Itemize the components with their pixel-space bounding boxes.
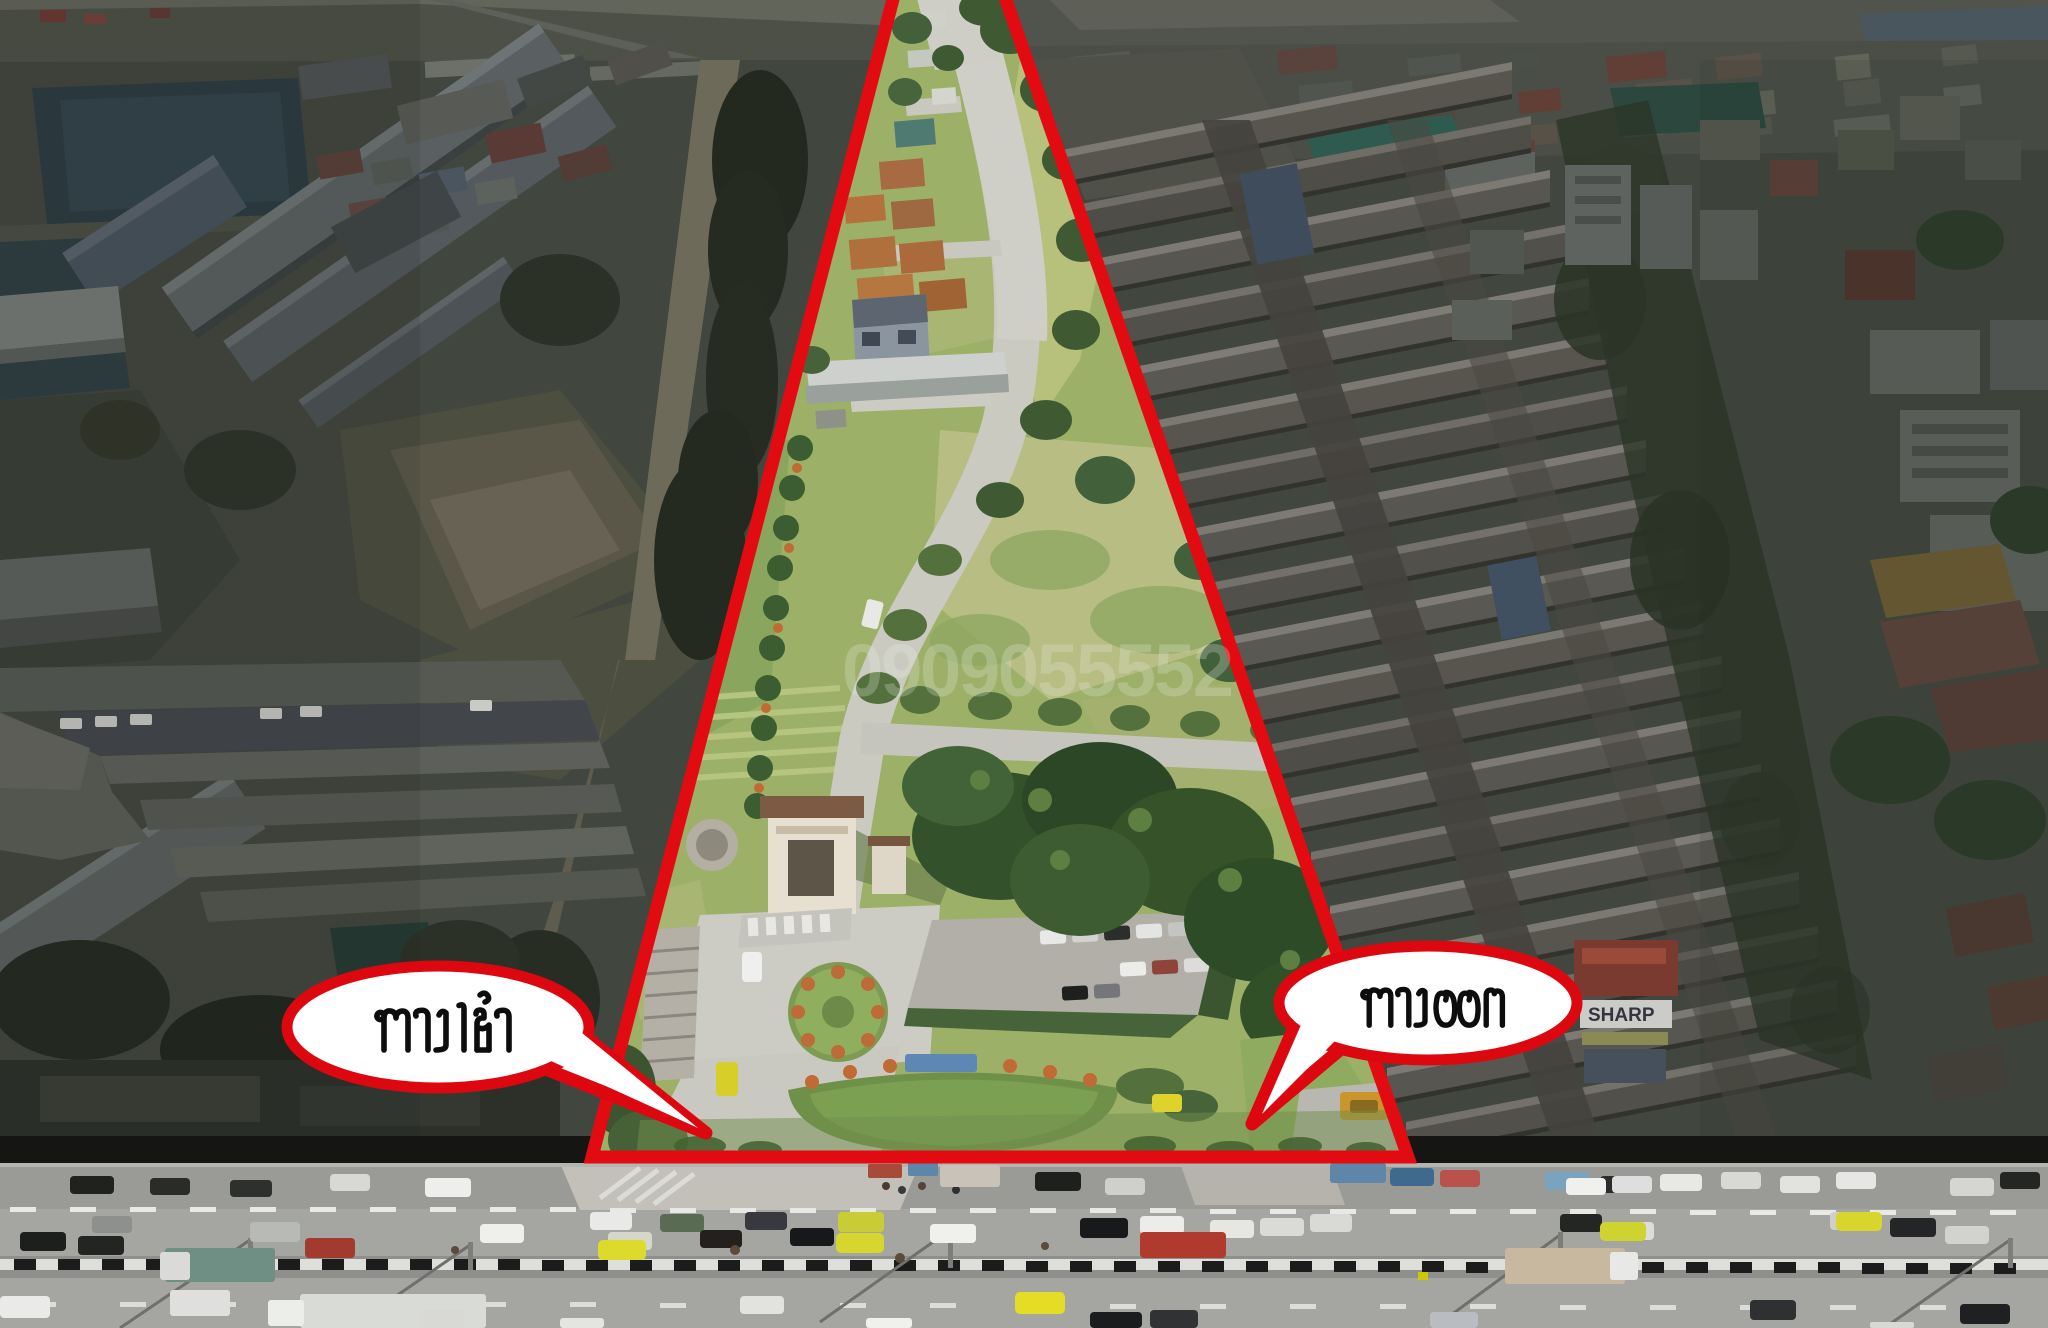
- svg-text:0909055552: 0909055552: [842, 629, 1234, 712]
- svg-text:SHARP: SHARP: [1588, 1005, 1655, 1026]
